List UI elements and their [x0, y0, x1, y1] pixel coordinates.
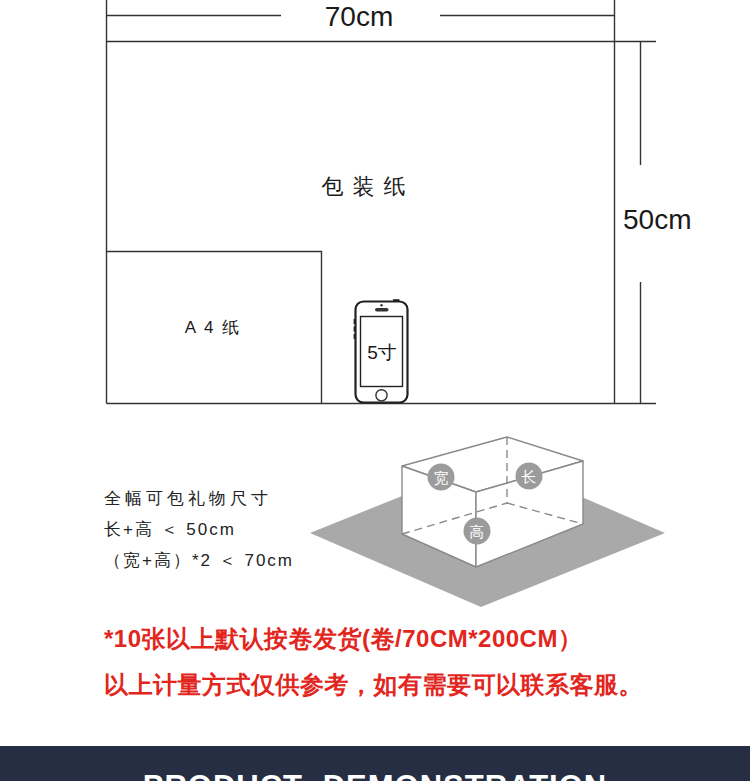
gift-size-rules: 全幅可包礼物尺寸 长+高 ＜ 50cm （宽+高）*2 ＜ 70cm	[104, 483, 294, 576]
gift-size-rule-1: 长+高 ＜ 50cm	[104, 514, 294, 545]
phone-home-button	[376, 390, 387, 401]
a4-paper-label: A 4 纸	[185, 318, 241, 337]
width-badge-label: 宽	[434, 469, 449, 486]
product-size-demo-image: 70cm 50cm 包装纸 A 4 纸 5寸	[0, 0, 750, 781]
dim-70cm-label: 70cm	[325, 1, 393, 32]
phone-illustration: 5寸	[355, 300, 408, 402]
section-banner-title: PRODUCT DEMONSTRATION	[0, 771, 750, 781]
shipping-notice-line-2: 以上计量方式仅供参考，如有需要可以联系客服。	[104, 662, 643, 708]
gift-box-illustration: 宽 长 高	[310, 437, 665, 607]
shipping-notice: *10张以上默认按卷发货(卷/70CM*200CM） 以上计量方式仅供参考，如有…	[104, 616, 643, 708]
phone-size-label: 5寸	[367, 342, 397, 363]
section-banner: PRODUCT DEMONSTRATION	[0, 746, 750, 781]
wrapping-paper-label: 包装纸	[322, 174, 415, 199]
dim-50cm-label: 50cm	[623, 204, 691, 235]
phone-speaker	[375, 308, 389, 312]
shipping-notice-line-1: *10张以上默认按卷发货(卷/70CM*200CM）	[104, 616, 643, 662]
gift-size-rule-2: （宽+高）*2 ＜ 70cm	[104, 545, 294, 576]
phone-camera-dot	[380, 304, 382, 306]
height-badge-label: 高	[470, 523, 485, 540]
gift-size-title: 全幅可包礼物尺寸	[104, 483, 294, 514]
length-badge-label: 长	[522, 468, 537, 485]
